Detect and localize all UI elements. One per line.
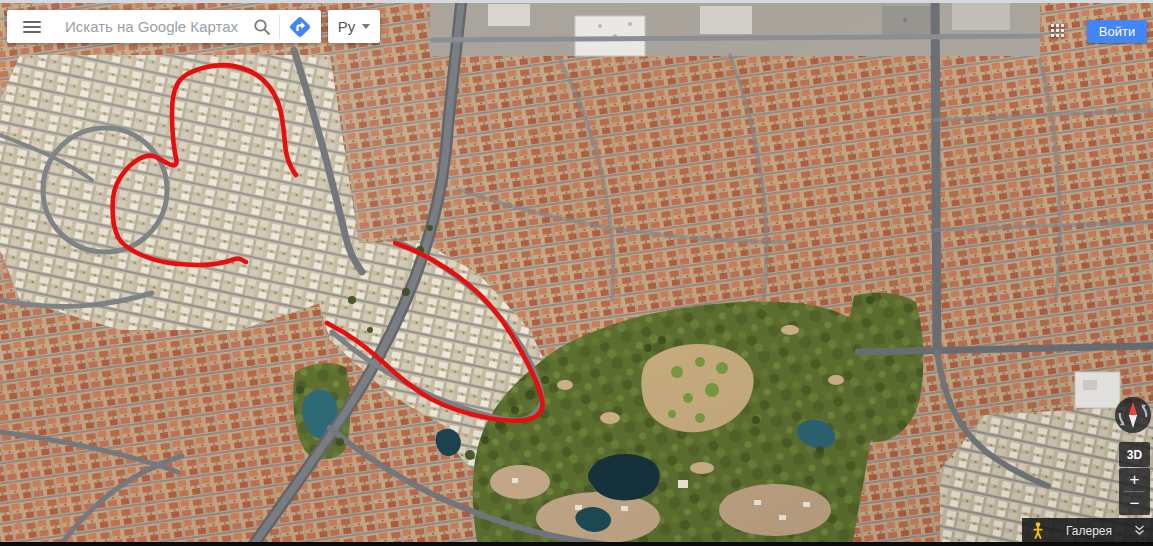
- language-label: Ру: [338, 18, 356, 35]
- satellite-map[interactable]: [0, 0, 1153, 546]
- compass-control[interactable]: [1114, 396, 1152, 434]
- zoom-out-button[interactable]: −: [1119, 492, 1150, 515]
- search-icon[interactable]: [252, 17, 272, 37]
- collapse-chevrons-icon[interactable]: [1134, 525, 1145, 536]
- search-bar: [7, 10, 321, 43]
- search-input[interactable]: [63, 17, 252, 36]
- 3d-button[interactable]: 3D: [1119, 442, 1150, 467]
- lighting-overlay: [0, 0, 1153, 546]
- caret-down-icon: [362, 24, 370, 29]
- menu-icon[interactable]: [23, 21, 41, 33]
- top-border: [0, 0, 1153, 3]
- search-divider: [279, 15, 280, 39]
- gallery-label: Галерея: [1044, 524, 1134, 538]
- language-selector[interactable]: Ру: [328, 10, 380, 43]
- gallery-bar[interactable]: Галерея: [1022, 518, 1153, 543]
- zoom-control: + −: [1119, 468, 1150, 515]
- directions-icon[interactable]: [287, 14, 313, 40]
- signin-button[interactable]: Войти: [1087, 20, 1147, 43]
- zoom-in-button[interactable]: +: [1119, 468, 1150, 491]
- pegman-icon[interactable]: [1032, 522, 1044, 539]
- bottom-border: [0, 542, 1153, 546]
- google-maps-window: Ру Войти 3D + − Галерея: [0, 0, 1153, 546]
- apps-grid-icon[interactable]: [1051, 24, 1064, 37]
